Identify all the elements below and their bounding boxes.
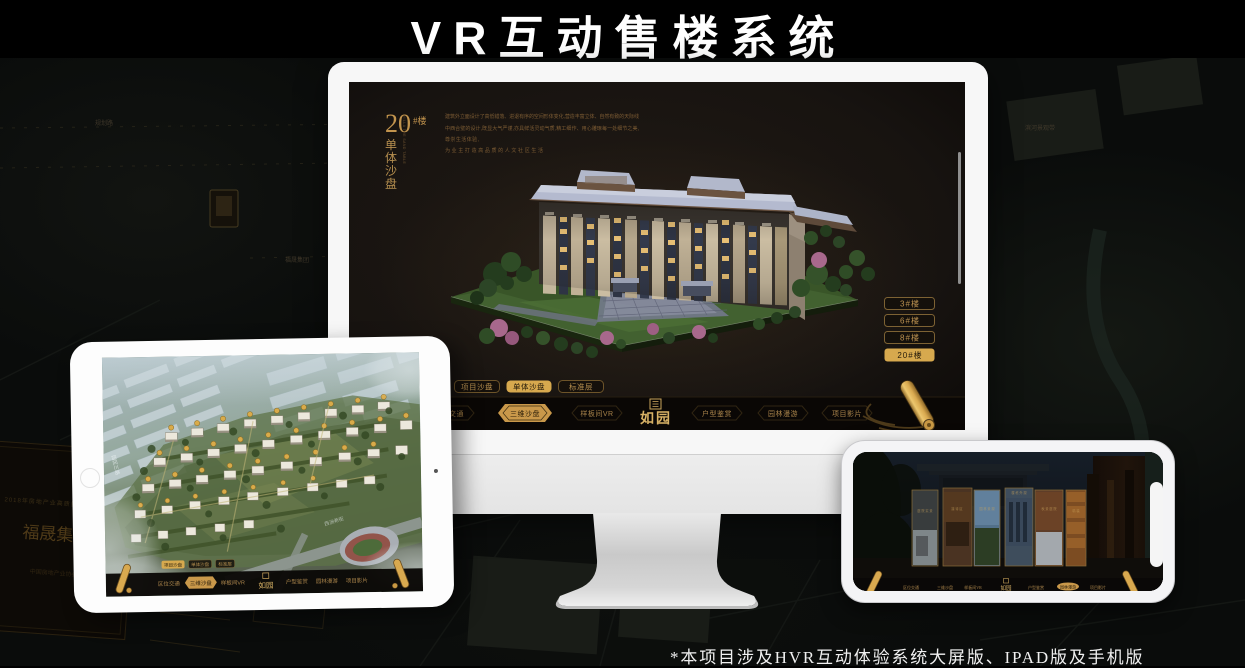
svg-text:户型鉴赏: 户型鉴赏 bbox=[1028, 584, 1044, 590]
svg-text:园林漫游: 园林漫游 bbox=[768, 409, 798, 418]
svg-text:单体沙盘: 单体沙盘 bbox=[513, 382, 545, 392]
svg-text:秋 景 庭 院: 秋 景 庭 院 bbox=[1041, 506, 1057, 511]
svg-text:尊崇生活体验,: 尊崇生活体验, bbox=[445, 136, 479, 143]
svg-text:VILLA THE SAND TABLE: VILLA THE SAND TABLE bbox=[402, 116, 406, 165]
svg-text:体: 体 bbox=[385, 151, 397, 165]
svg-text:20#楼: 20#楼 bbox=[897, 350, 922, 360]
svg-text:福晟集团: 福晟集团 bbox=[285, 256, 309, 264]
svg-text:楼 栋 外 观: 楼 栋 外 观 bbox=[1011, 490, 1027, 495]
svg-text:三维沙盘: 三维沙盘 bbox=[510, 409, 540, 418]
svg-text:园林漫游: 园林漫游 bbox=[1060, 584, 1076, 590]
svg-text:项目影片: 项目影片 bbox=[832, 409, 862, 418]
svg-text:园 林 景 观: 园 林 景 观 bbox=[979, 506, 995, 511]
svg-text:标准层: 标准层 bbox=[569, 382, 593, 392]
svg-text:区位交通: 区位交通 bbox=[903, 584, 919, 590]
svg-text:如园: 如园 bbox=[640, 410, 672, 427]
svg-text:项目影片: 项目影片 bbox=[1090, 584, 1106, 590]
svg-text:样板间VR: 样板间VR bbox=[964, 584, 982, 590]
svg-text:样板间VR: 样板间VR bbox=[580, 409, 613, 418]
svg-text:中西合璧的设计,既显大气严谨,亦具鲜活灵动气质,精工细作、用: 中西合璧的设计,既显大气严谨,亦具鲜活灵动气质,精工细作、用心雕琢每一处细节之美… bbox=[445, 125, 639, 132]
svg-text:单: 单 bbox=[385, 138, 397, 152]
svg-text:3#楼: 3#楼 bbox=[900, 299, 920, 309]
svg-text:如园: 如园 bbox=[258, 580, 273, 590]
svg-text:建筑外立面设计了高低错落、进退有序的空间形体变化,营造丰富立: 建筑外立面设计了高低错落、进退有序的空间形体变化,营造丰富立体、自然有致的天际线 bbox=[445, 113, 639, 120]
svg-text:规划路: 规划路 bbox=[95, 119, 113, 127]
svg-text:盘: 盘 bbox=[385, 176, 397, 191]
svg-text:三维沙盘: 三维沙盘 bbox=[937, 584, 953, 590]
svg-text:精 装: 精 装 bbox=[1072, 508, 1080, 513]
svg-text:户型鉴赏: 户型鉴赏 bbox=[702, 409, 732, 418]
svg-text:#楼: #楼 bbox=[413, 115, 427, 126]
svg-text:项目沙盘: 项目沙盘 bbox=[461, 382, 493, 392]
svg-text:20: 20 bbox=[385, 109, 411, 138]
svg-text:滨河景观带: 滨河景观带 bbox=[1025, 124, 1055, 132]
svg-text:8#楼: 8#楼 bbox=[900, 333, 920, 343]
svg-text:接 待 区: 接 待 区 bbox=[951, 506, 963, 511]
svg-text:6#楼: 6#楼 bbox=[900, 316, 920, 326]
svg-text:庭 院 实 景: 庭 院 实 景 bbox=[917, 508, 932, 513]
svg-text:如园: 如园 bbox=[1000, 584, 1012, 591]
svg-text:沙: 沙 bbox=[385, 164, 397, 178]
svg-text:为业主打造高品质的人文社区生活: 为业主打造高品质的人文社区生活 bbox=[445, 147, 543, 154]
